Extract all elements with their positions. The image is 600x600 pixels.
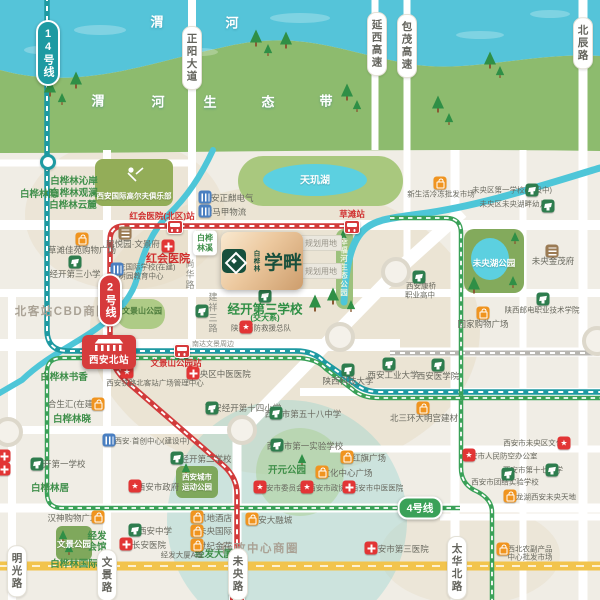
hospital-icon[interactable] bbox=[120, 538, 133, 551]
tree-icon bbox=[509, 276, 517, 288]
tree-icon bbox=[432, 96, 444, 113]
poi-label: 鹏悦园·文景府 bbox=[106, 238, 160, 250]
station-columns-icon bbox=[95, 345, 123, 351]
poi-label: 西安医学院 bbox=[417, 370, 460, 382]
hospital-icon[interactable] bbox=[365, 542, 378, 555]
shopping-icon[interactable] bbox=[341, 451, 354, 464]
shopping-icon[interactable] bbox=[504, 490, 517, 503]
school-icon[interactable] bbox=[259, 290, 272, 303]
school-icon[interactable] bbox=[206, 402, 219, 415]
tree-icon bbox=[70, 72, 82, 89]
school-icon[interactable] bbox=[546, 464, 559, 477]
metro-station-icon[interactable] bbox=[174, 344, 190, 358]
river-label: 生 bbox=[203, 92, 216, 111]
shopping-icon[interactable] bbox=[246, 513, 259, 526]
road-name-pill: 未央路 bbox=[228, 548, 248, 600]
road-name-pill: 北辰路 bbox=[573, 17, 593, 69]
shopping-icon[interactable] bbox=[76, 233, 89, 246]
poi-label: 西安市政府 bbox=[137, 481, 180, 493]
road-name-pill: 文景路 bbox=[97, 549, 117, 600]
river-label: 河 bbox=[225, 13, 238, 32]
station-name: 西安北站 bbox=[89, 352, 129, 366]
tree-icon bbox=[280, 32, 292, 49]
tree-icon bbox=[264, 44, 272, 56]
project-emblem-icon bbox=[222, 249, 246, 273]
poi-label: 文化中心广场 bbox=[321, 467, 372, 479]
school-icon[interactable] bbox=[31, 458, 44, 471]
hospital-icon[interactable] bbox=[0, 463, 11, 476]
shopping-icon[interactable] bbox=[191, 539, 204, 552]
metro-station-label: 红会医院(北区)站 bbox=[129, 210, 194, 222]
poi-label: 新生活冷冻批发市场 bbox=[407, 189, 475, 200]
hospital-icon[interactable] bbox=[0, 450, 11, 463]
poi-label: 陕西科技大学 bbox=[322, 375, 373, 387]
tree-icon bbox=[58, 93, 66, 105]
company-icon[interactable] bbox=[199, 191, 212, 204]
government-icon[interactable] bbox=[301, 481, 314, 494]
poi-label: 西安工业大学 bbox=[367, 369, 418, 381]
government-icon[interactable] bbox=[254, 481, 267, 494]
park-label: 文景公园 bbox=[57, 538, 91, 550]
poi-label: 红旗广场 bbox=[352, 452, 386, 464]
planned-land-label: 规划用地 bbox=[300, 263, 342, 279]
poi-label: 西安中学 bbox=[138, 525, 172, 537]
residential-label: 白桦林晓 bbox=[53, 411, 91, 425]
park-label: 天玑湖 bbox=[300, 172, 330, 187]
metro-station-icon[interactable] bbox=[344, 220, 360, 234]
poi-label: 经开第二学校 bbox=[180, 453, 231, 465]
park-label: 运动公园 bbox=[182, 482, 212, 493]
school-icon[interactable] bbox=[537, 293, 550, 306]
poi-label: 西安市第三医院 bbox=[369, 543, 429, 555]
shopping-icon[interactable] bbox=[497, 543, 510, 556]
tree-icon bbox=[511, 232, 519, 244]
shopping-icon[interactable] bbox=[191, 525, 204, 538]
government-icon[interactable] bbox=[240, 321, 253, 334]
school-icon[interactable] bbox=[432, 359, 445, 372]
road-name-pill: 太华北路 bbox=[447, 536, 467, 600]
tree-icon bbox=[327, 288, 339, 305]
poi-label: 南达文景周边 bbox=[192, 339, 234, 349]
shopping-icon[interactable] bbox=[316, 466, 329, 479]
river-label: 带 bbox=[319, 91, 332, 110]
linxi-line1: 白桦 bbox=[197, 233, 213, 243]
project-brand: 白桦林 bbox=[250, 250, 260, 273]
poi-label: 回家购物广场 bbox=[457, 318, 508, 330]
poi-label: 西安·首创中心(建设中) bbox=[115, 436, 190, 447]
shopping-icon[interactable] bbox=[92, 511, 105, 524]
road-name-pill: 正阳大道 bbox=[182, 26, 202, 90]
school-icon[interactable] bbox=[383, 358, 396, 371]
hospital-icon[interactable] bbox=[343, 481, 356, 494]
shopping-icon[interactable] bbox=[434, 177, 447, 190]
company-icon[interactable] bbox=[103, 434, 116, 447]
hospital-icon[interactable] bbox=[187, 367, 200, 380]
tree-icon bbox=[496, 66, 504, 78]
poi-label: 陕西邮电职业技术学院 bbox=[505, 305, 580, 316]
road-name-pill: 明光路 bbox=[7, 545, 27, 597]
road-junction bbox=[227, 415, 257, 445]
project-logo-card[interactable]: 白桦林 学畔 bbox=[221, 232, 303, 290]
planned-land-label: 规划用地 bbox=[300, 235, 342, 251]
school-icon[interactable] bbox=[129, 524, 142, 537]
poi-label: 龙湖西安未央天地 bbox=[516, 492, 576, 503]
river-label: 河 bbox=[151, 92, 164, 111]
road-junction bbox=[325, 322, 355, 352]
road-name-pill: 包茂高速 bbox=[397, 14, 417, 78]
residential-label: 白桦林云麓 bbox=[49, 197, 97, 211]
tree-icon bbox=[309, 295, 321, 312]
poi-label: 西安市中医医院 bbox=[351, 483, 404, 494]
poi-label: 西安市政协 bbox=[308, 483, 346, 494]
tree-icon bbox=[468, 277, 480, 294]
linxi-line2: 林溪 bbox=[197, 243, 213, 253]
tree-icon bbox=[445, 113, 453, 125]
school-icon[interactable] bbox=[342, 364, 355, 377]
school-icon[interactable] bbox=[526, 184, 539, 197]
district-label: 北客站CBD商圈 bbox=[15, 303, 109, 319]
park-label: 文景山公园 bbox=[122, 306, 162, 317]
linxi-compound-card[interactable]: 白桦 林溪 bbox=[193, 230, 217, 255]
tree-icon bbox=[484, 52, 496, 69]
poi-label: 合生汇(在建) bbox=[48, 398, 96, 410]
school-icon[interactable] bbox=[171, 452, 184, 465]
metro-station-icon[interactable] bbox=[167, 220, 183, 234]
residential-label: 开元公园 bbox=[268, 462, 306, 476]
estate-icon[interactable] bbox=[546, 245, 559, 258]
school-icon[interactable] bbox=[542, 200, 555, 213]
metro-line4-badge[interactable]: 4号线 bbox=[398, 497, 443, 520]
school-icon[interactable] bbox=[502, 468, 515, 481]
residential-label: 白桦林国际 bbox=[50, 556, 98, 570]
school-icon[interactable] bbox=[270, 407, 283, 420]
river-label: 态 bbox=[261, 92, 274, 111]
park-label: 西安国际高尔夫俱乐部 bbox=[97, 191, 172, 202]
residential-label: 白桦林书香 bbox=[40, 369, 88, 383]
shopping-icon[interactable] bbox=[92, 398, 105, 411]
hospital-icon[interactable] bbox=[162, 240, 175, 253]
project-name: 学畔 bbox=[264, 248, 302, 275]
metro-line2-badge[interactable]: 2号线 bbox=[98, 274, 122, 327]
metro-station-label: 草滩站 bbox=[339, 208, 365, 220]
government-icon[interactable] bbox=[129, 480, 142, 493]
school-icon[interactable] bbox=[69, 256, 82, 269]
poi-label: 中心批发市场 bbox=[508, 552, 553, 563]
poi-label: 经开第三小学 bbox=[49, 268, 100, 280]
school-icon[interactable] bbox=[413, 271, 426, 284]
park-label: 未央湖公园 bbox=[473, 257, 516, 269]
tree-icon bbox=[353, 100, 361, 112]
river-label: 渭 bbox=[150, 12, 163, 31]
poi-label: 职业高中 bbox=[405, 290, 435, 301]
school-icon[interactable] bbox=[196, 305, 209, 318]
tree-icon bbox=[341, 84, 353, 101]
station-roof-icon bbox=[92, 339, 126, 344]
tree-icon bbox=[250, 30, 262, 47]
shopping-icon[interactable] bbox=[477, 307, 490, 320]
estate-icon[interactable] bbox=[119, 227, 132, 240]
poi-label: 树园教育中心 bbox=[119, 271, 164, 282]
school-icon[interactable] bbox=[271, 439, 284, 452]
company-icon[interactable] bbox=[199, 205, 212, 218]
government-icon[interactable] bbox=[558, 437, 571, 450]
metro-station-marker[interactable] bbox=[40, 154, 56, 170]
shopping-icon[interactable] bbox=[191, 511, 204, 524]
government-icon[interactable] bbox=[463, 449, 476, 462]
poi-label: 未央区第一学校(建设中) bbox=[472, 185, 552, 196]
road-name-pill: 延西高速 bbox=[367, 12, 387, 76]
residential-label: 白桦林居 bbox=[31, 480, 69, 494]
river-label: 渭 bbox=[91, 91, 104, 110]
xian-north-station-landmark[interactable]: 西安北站 bbox=[82, 335, 136, 369]
shopping-icon[interactable] bbox=[417, 402, 430, 415]
metro-line14-badge[interactable]: 14号线 bbox=[36, 20, 60, 86]
location-map[interactable]: 14号线 2号线 4号线 西安北站 白桦林 学畔 白桦 林溪 渭河渭河生态带正阳… bbox=[0, 0, 600, 600]
tree-icon bbox=[347, 300, 355, 312]
